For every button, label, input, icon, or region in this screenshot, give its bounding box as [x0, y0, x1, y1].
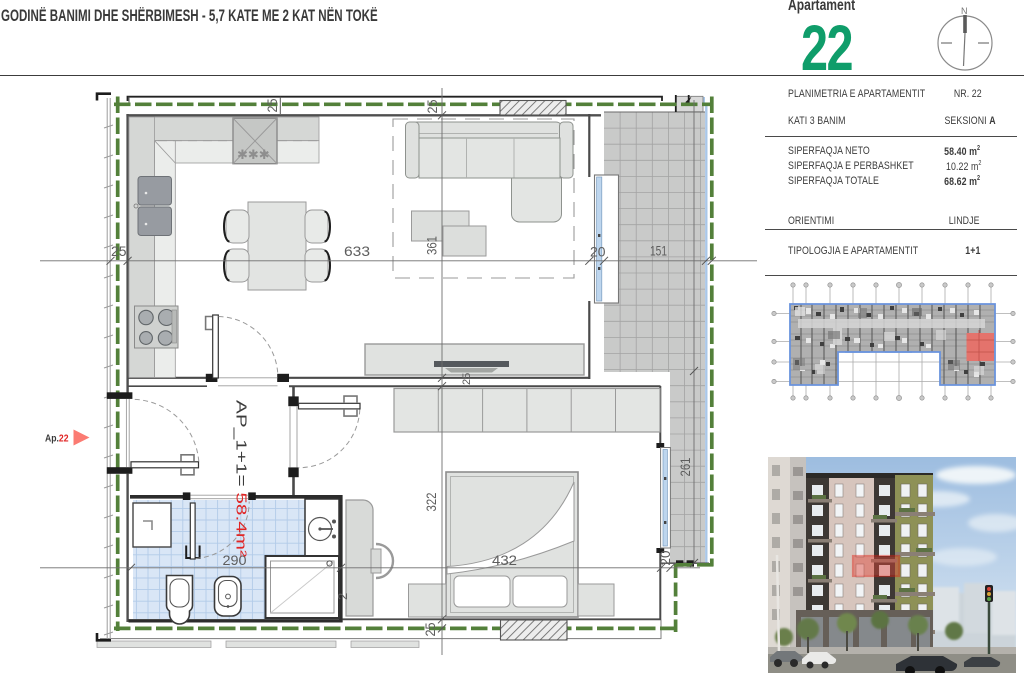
svg-text:151: 151: [650, 243, 667, 259]
svg-text:25: 25: [111, 243, 127, 259]
svg-text:322: 322: [423, 492, 439, 511]
svg-text:25: 25: [461, 373, 473, 385]
svg-text:25: 25: [422, 622, 438, 636]
svg-text:25: 25: [424, 99, 440, 113]
svg-text:2: 2: [335, 593, 350, 600]
svg-text:432: 432: [492, 552, 517, 568]
svg-text:20: 20: [657, 550, 673, 565]
svg-text:261: 261: [677, 457, 693, 476]
svg-text:N: N: [961, 6, 968, 16]
svg-text:361: 361: [424, 236, 440, 255]
svg-text:Ap.22: Ap.22: [45, 433, 69, 445]
svg-text:633: 633: [344, 243, 370, 259]
svg-text:20: 20: [590, 244, 606, 260]
svg-text:25: 25: [264, 98, 280, 112]
svg-text:✱✱✱: ✱✱✱: [237, 147, 270, 162]
svg-text:AP_1+1= 58.4m²: AP_1+1= 58.4m²: [233, 400, 249, 557]
